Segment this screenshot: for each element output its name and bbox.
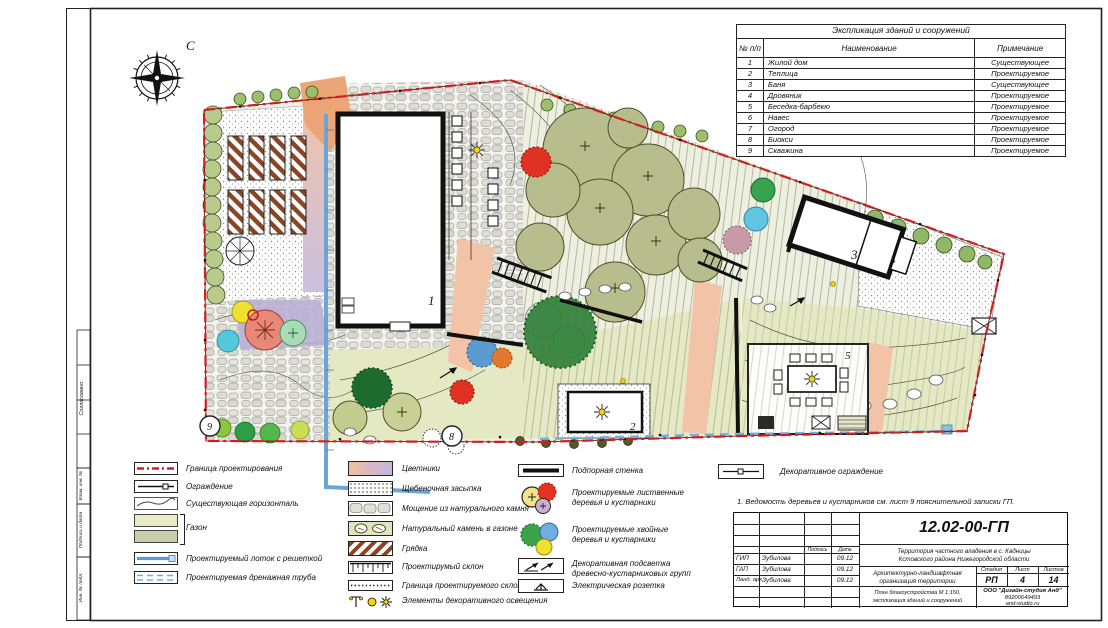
row-num: 5 — [737, 102, 764, 112]
legend-label: Проектирумый склон — [402, 562, 484, 572]
row-note: Существующее — [975, 80, 1065, 90]
drawing-sheet: 1 2 3 4 5 8 9 С Экспликация зданий и соо… — [0, 0, 1108, 628]
legend-swatch-gutter — [134, 552, 178, 565]
row-name: Жилой дом — [764, 58, 975, 68]
legend-label: Цветники — [402, 464, 440, 474]
legend-label: Щебеночная засыпка — [402, 484, 481, 494]
row-num: 7 — [737, 124, 764, 134]
explication-table: Экспликация зданий и сооружений № п/п На… — [736, 24, 1066, 157]
legend-label: Подпорная стенка — [572, 466, 643, 476]
row-note: Проектируемое — [975, 102, 1065, 112]
legend-label: Мощение из натурального камня — [402, 504, 529, 514]
label-bath: 3 — [850, 247, 858, 262]
row-name: Беседка-барбекю — [764, 102, 975, 112]
sheet-label: Лист — [1007, 567, 1038, 573]
stage-value: РП — [976, 575, 1007, 585]
row-name: Дровяник — [764, 91, 975, 101]
legend-label: Проектируемые лиственные деревья и куста… — [572, 488, 692, 507]
date-col-header: Дата — [831, 547, 859, 553]
legend-label: Проектируемая дренажная труба — [186, 573, 316, 583]
sheet-title-line1: План благоустройства М 1:150, — [861, 590, 974, 596]
compass-rose — [129, 50, 185, 106]
col-num-header: № п/п — [737, 39, 764, 57]
frame-vzam-label: Взам. инв. № — [79, 468, 84, 503]
table-row: 8БиоксиПроектируемое — [737, 135, 1065, 146]
row-num: 9 — [737, 146, 764, 156]
table-row: 3БаняСуществующее — [737, 80, 1065, 91]
legend-swatch-stone-in-lawn — [348, 521, 393, 536]
row-note: Проектируемое — [975, 91, 1065, 101]
frame-approved-label: Согласовано: — [79, 330, 85, 466]
row-note: Существующее — [975, 58, 1065, 68]
label-greenhouse: 2 — [630, 421, 636, 433]
table-row: 7ОгородПроектируемое — [737, 124, 1065, 135]
legend-label: Элементы декоративного освещения — [402, 596, 547, 606]
legend-swatch-lawn-light — [134, 514, 178, 527]
row-name: Теплица — [764, 69, 975, 79]
legend-swatch-project-boundary — [134, 462, 178, 475]
row-note: Проектируемое — [975, 113, 1065, 123]
sig-name: Зубилова — [762, 577, 791, 584]
compass-north-label: С — [186, 38, 195, 53]
territory-line2: Кстовского района Нижегородской области — [859, 556, 1069, 563]
row-note: Проектируемое — [975, 135, 1065, 145]
legend-label: Граница проектируемого склона — [402, 581, 526, 591]
legend-swatch-stone-paving — [348, 501, 393, 516]
legend-swatch-gravel — [348, 481, 393, 496]
sig-role: Ланд. арх. — [736, 577, 764, 583]
col-name-header: Наименование — [764, 39, 975, 57]
frame-podp-label: Подпись и дата — [79, 504, 84, 556]
table-row: 4ДровяникПроектируемое — [737, 91, 1065, 102]
row-name: Баня — [764, 80, 975, 90]
legend-swatch-flowerbeds — [348, 461, 393, 476]
legend-label: Существующая горизонталь — [186, 499, 299, 509]
row-num: 6 — [737, 113, 764, 123]
sheets-label: Листов — [1038, 567, 1069, 573]
row-name: Навес — [764, 113, 975, 123]
sheet-value: 4 — [1007, 575, 1038, 585]
sig-date: 09.12 — [831, 566, 859, 573]
legend-swatch-garden-bed — [348, 541, 393, 556]
legend-swatch-fence — [134, 480, 178, 493]
lawn-bracket — [180, 514, 185, 545]
label-woodshed: 4 — [891, 255, 896, 265]
row-name: Огород — [764, 124, 975, 134]
legend-swatch-lawn-dark — [134, 530, 178, 543]
row-name: Биокси — [764, 135, 975, 145]
legend-label: Электрическая розетка — [572, 581, 665, 591]
row-note: Проектируемое — [975, 69, 1065, 79]
legend-label: Проектируемые хвойные деревья и кустарни… — [572, 525, 692, 544]
sig-date: 09.12 — [831, 577, 859, 584]
table-row: 1Жилой домСуществующее — [737, 58, 1065, 69]
legend-label: Грядка — [402, 544, 427, 554]
explication-title: Экспликация зданий и сооружений — [737, 25, 1065, 39]
col-note-header: Примечание — [975, 39, 1065, 57]
legend-swatch-contour — [134, 497, 178, 510]
legend-label: Проектируемый лоток с решеткой — [186, 554, 322, 564]
note: 1. Ведомость деревьев и кустарников см. … — [737, 497, 1067, 506]
legend-label: Граница проектирования — [186, 464, 282, 474]
territory-line1: Территория частного владения в с. Кадниц… — [859, 548, 1069, 555]
label-well: 9 — [207, 422, 212, 433]
sig-name: Зубилова — [762, 566, 791, 573]
table-row: 9СкважинаПроектируемое — [737, 146, 1065, 156]
company-name: ООО "Дизайн-студия Анд" — [976, 588, 1069, 594]
sig-date: 09.12 — [831, 555, 859, 562]
legend-label: Декоративная подсветка древесно-кустарни… — [572, 559, 702, 578]
label-house: 1 — [428, 293, 435, 308]
legend-swatch-coniferous — [518, 519, 568, 562]
table-row: 2ТеплицаПроектируемое — [737, 69, 1065, 80]
frame-inv-label: Инв. № подл. — [79, 557, 84, 618]
table-row: 5Беседка-барбекюПроектируемое — [737, 102, 1065, 113]
legend-swatch-drainpipe — [134, 571, 178, 584]
stage-label: Стадия — [976, 567, 1007, 573]
row-note: Проектируемое — [975, 124, 1065, 134]
explication-header: № п/п Наименование Примечание — [737, 39, 1065, 58]
legend-swatch-slope-boundary — [348, 580, 393, 591]
row-note: Проектируемое — [975, 146, 1065, 156]
label-gazebo: 5 — [845, 350, 851, 362]
sign-col-header: Подпись — [804, 547, 831, 553]
legend-label: Ограждение — [186, 482, 233, 492]
table-row: 6НавесПроектируемое — [737, 113, 1065, 124]
legend-label: Газон — [186, 523, 207, 533]
row-name: Скважина — [764, 146, 975, 156]
row-num: 2 — [737, 69, 764, 79]
sig-name: Зубилова — [762, 555, 791, 562]
sheet-title-line2: экспликация зданий и сооружений — [861, 598, 974, 604]
row-num: 4 — [737, 91, 764, 101]
sheets-value: 14 — [1038, 575, 1069, 585]
project-title: Архитектурно-ландшафтная организация тер… — [861, 570, 974, 586]
title-block: Подпись Дата ГИП Зубилова 09.12 ГАП Зуби… — [733, 512, 1068, 607]
sig-role: ГИП — [736, 555, 749, 562]
legend-swatch-lighting — [348, 593, 394, 615]
legend-swatch-socket — [518, 579, 564, 593]
legend-swatch-slope — [348, 561, 393, 574]
sig-role: ГАП — [736, 566, 748, 573]
legend-swatch-uplight — [518, 558, 564, 574]
company-site: and-studio.ru — [976, 601, 1069, 607]
legend-swatch-retaining-wall — [518, 464, 564, 477]
legend-swatch-decorative-fence — [718, 464, 764, 479]
row-num: 1 — [737, 58, 764, 68]
doc-number: 12.02-00-ГП — [859, 519, 1069, 537]
label-bioksi: 8 — [449, 432, 454, 443]
legend-label: Декоративное ограждение — [780, 467, 883, 477]
row-num: 8 — [737, 135, 764, 145]
row-num: 3 — [737, 80, 764, 90]
legend-label: Натуральный камень в газоне — [402, 524, 518, 534]
